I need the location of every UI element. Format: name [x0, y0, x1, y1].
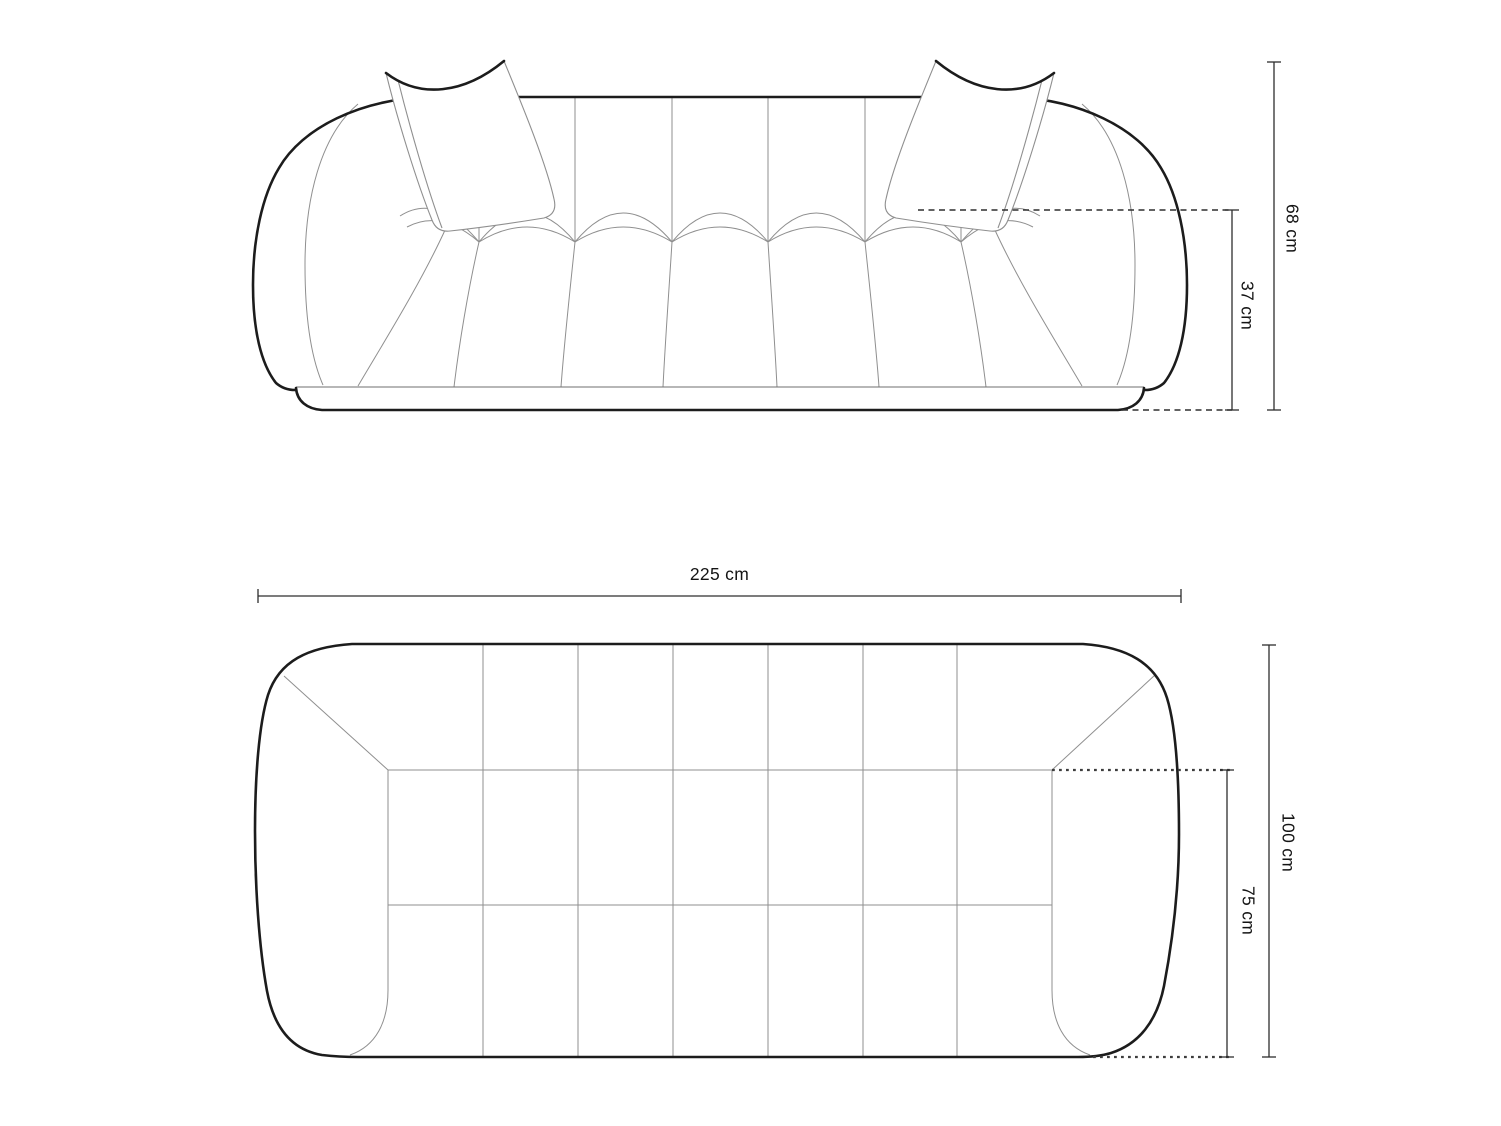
top-sofa-outline [255, 644, 1179, 1057]
dimension-line-seat-height [1225, 210, 1239, 410]
dimension-label-seat-depth: 75 cm [1239, 886, 1257, 935]
front-sofa-outline [253, 97, 1187, 410]
top-view-drawing [255, 589, 1276, 1057]
dimension-label-total-height: 68 cm [1283, 204, 1301, 253]
dimension-line-total-height [1267, 62, 1281, 410]
top-upholstery-seams [284, 645, 1155, 1056]
dimension-line-total-width [258, 589, 1181, 603]
dimension-label-total-width: 225 cm [258, 566, 1181, 584]
dimension-label-total-depth: 100 cm [1279, 813, 1297, 872]
sofa-dimension-drawing: 225 cm 68 cm 37 cm 100 cm 75 cm [0, 0, 1501, 1126]
back-cushion-left [386, 61, 555, 231]
dimension-line-seat-depth [1220, 770, 1234, 1057]
dimension-label-seat-height: 37 cm [1238, 281, 1256, 330]
back-cushion-right [885, 61, 1054, 231]
dimension-line-total-depth [1262, 645, 1276, 1057]
front-view-drawing [253, 61, 1281, 410]
top-dimension-lines [258, 589, 1276, 1057]
technical-drawing-svg [0, 0, 1501, 1126]
